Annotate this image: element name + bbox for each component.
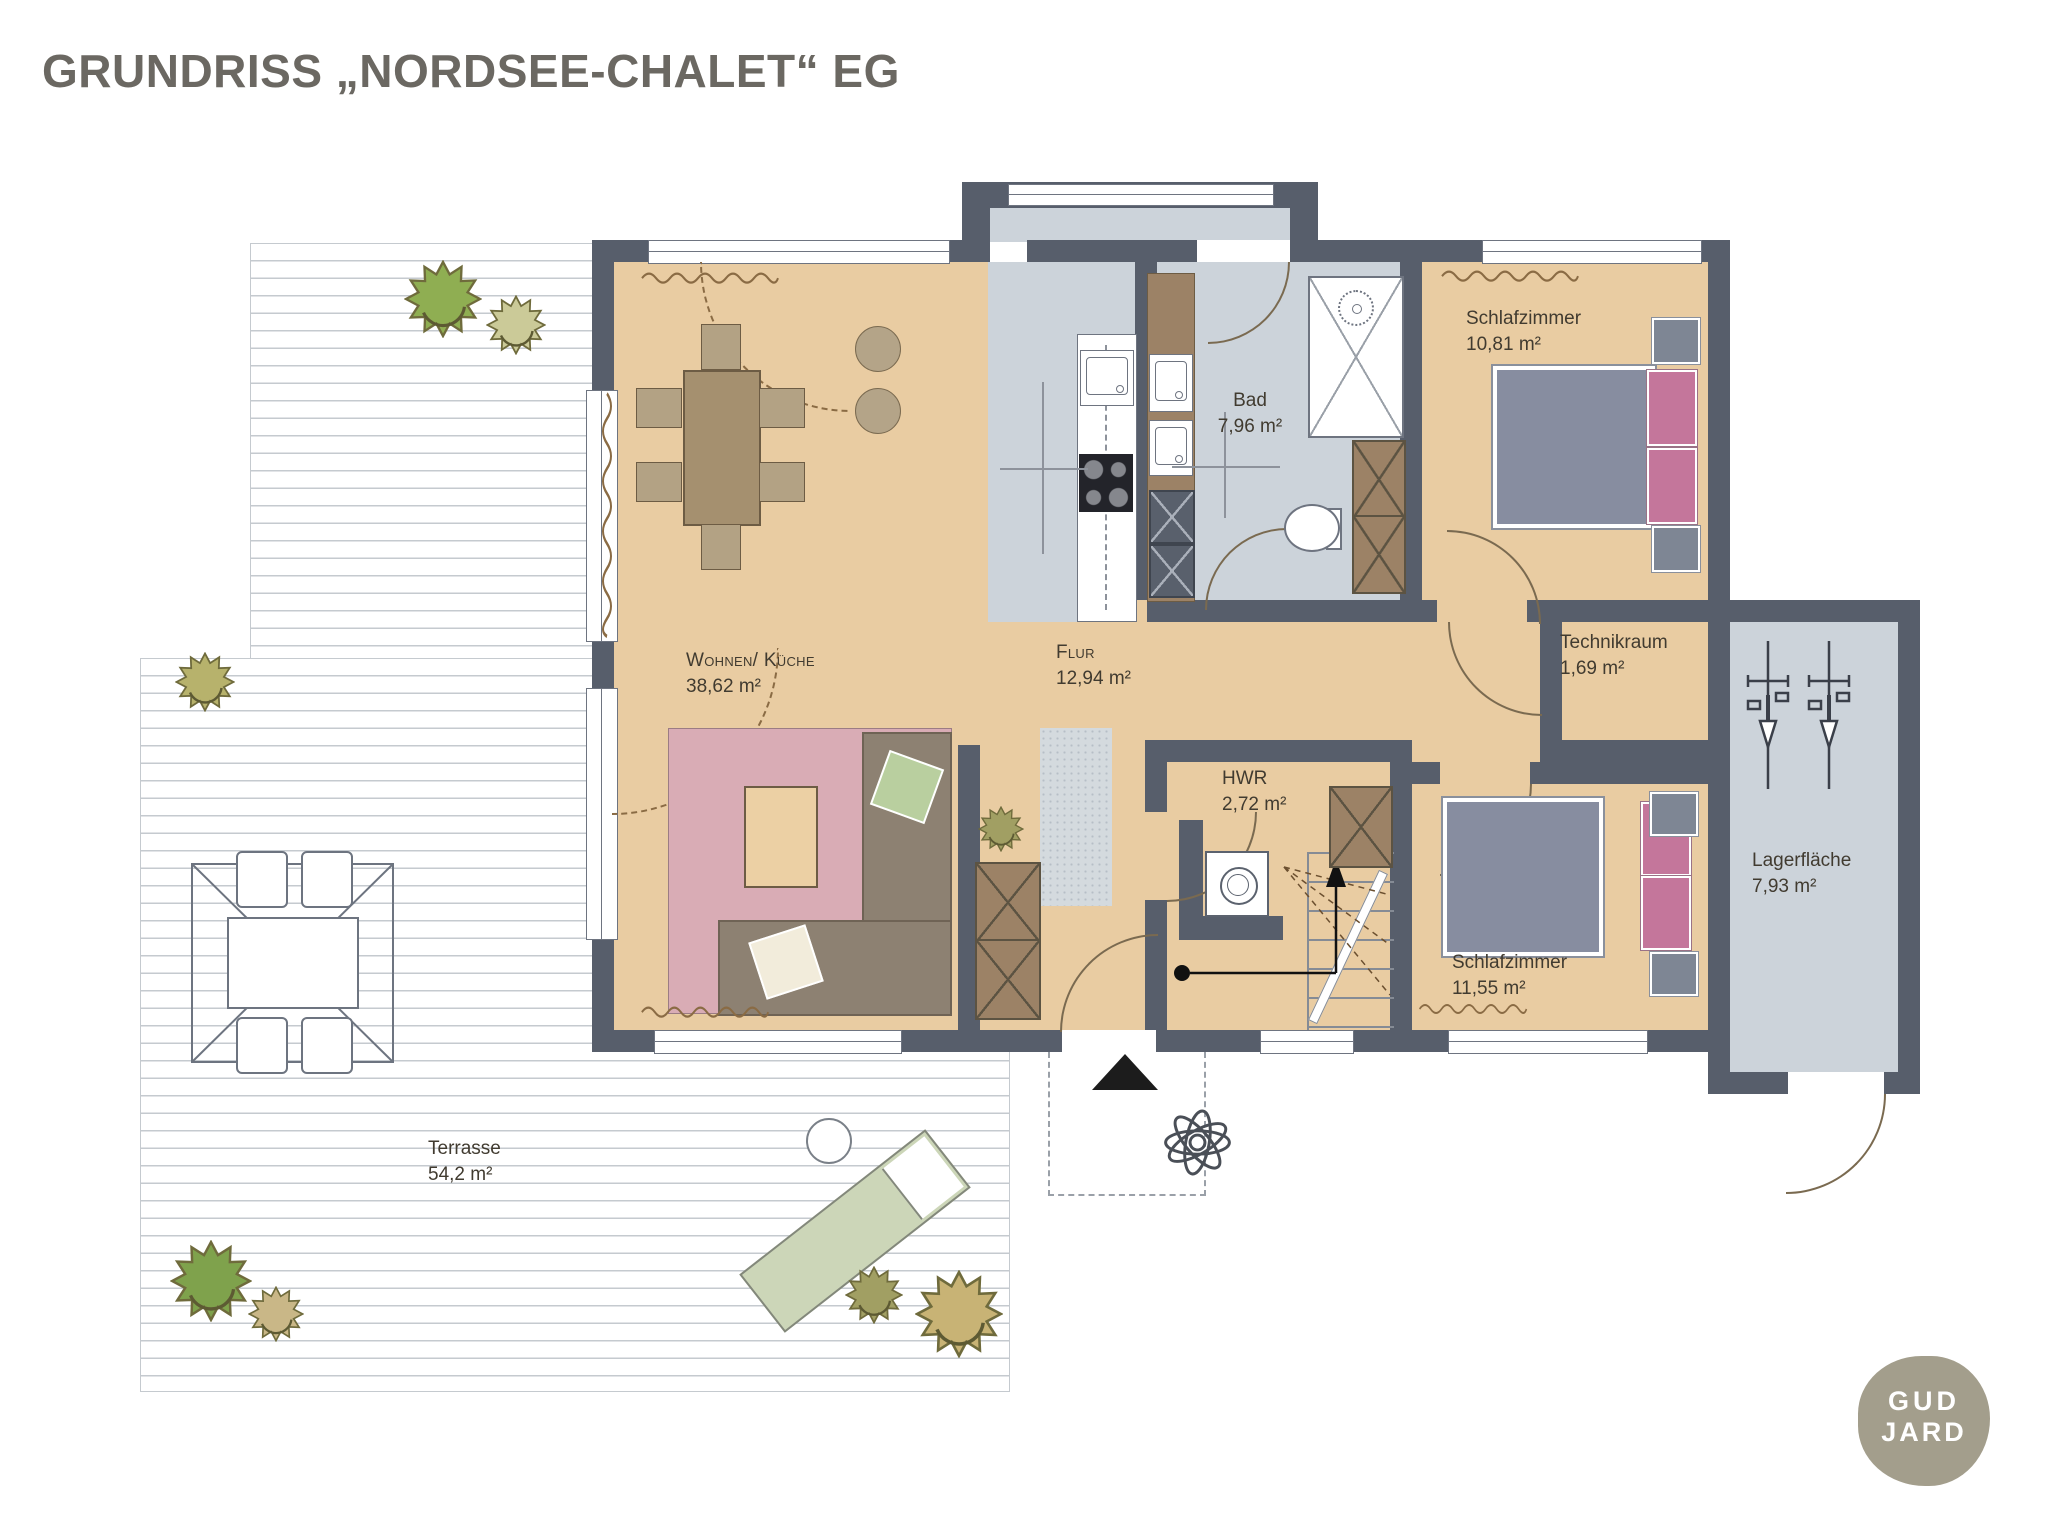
bath-cabinet <box>1352 440 1406 519</box>
pouf <box>855 326 901 372</box>
kitchen-sink <box>1080 350 1134 406</box>
wall <box>1708 240 1730 1094</box>
wall <box>1412 762 1440 784</box>
wall <box>592 1030 654 1052</box>
hall-mat <box>1040 728 1112 906</box>
bed <box>1493 366 1655 528</box>
door-arc-storage <box>1786 1094 1886 1194</box>
room-label-bedroom-bottom: Schlafzimmer 11,55 m² <box>1452 950 1567 1001</box>
chair <box>636 462 682 502</box>
wall-bay <box>1290 182 1318 262</box>
bay-window <box>1008 184 1274 206</box>
bay-floor <box>990 208 1290 242</box>
chair <box>636 388 682 428</box>
wall-storage <box>1884 1072 1920 1094</box>
wall-bay <box>962 182 990 262</box>
dimension-line <box>1172 466 1280 468</box>
tree-icon <box>915 1270 1003 1358</box>
sideboard <box>975 939 1041 1020</box>
bath-cabinet <box>1352 515 1406 594</box>
curtain-icon <box>1418 1000 1528 1016</box>
plant-sketch-icon <box>1155 1100 1240 1185</box>
pouf <box>855 388 901 434</box>
hall-cabinet <box>1329 786 1393 868</box>
curtain-icon <box>640 1002 770 1020</box>
wall <box>592 240 614 390</box>
wall <box>592 640 614 690</box>
toilet <box>1284 504 1340 552</box>
curtain-icon <box>1440 266 1580 284</box>
washbasin <box>1149 354 1193 412</box>
wall <box>1352 1030 1454 1052</box>
tree-icon <box>170 1240 252 1322</box>
wall <box>1527 600 1708 622</box>
room-label-bath: Bad 7,96 m² <box>1190 388 1310 439</box>
window-living-top <box>648 240 950 264</box>
cooktop <box>1079 454 1133 512</box>
dimension-line <box>1000 468 1088 470</box>
umbrella-table-group <box>180 850 405 1075</box>
nightstand <box>1652 318 1700 364</box>
storage-door-gap <box>1788 1072 1884 1094</box>
bath-door-gap <box>1197 240 1290 262</box>
tree-icon <box>248 1286 304 1342</box>
room-label-hall: Flur 12,94 m² <box>1056 640 1131 691</box>
dining-table <box>683 370 761 526</box>
wall-storage <box>1898 600 1920 1094</box>
curtain-icon <box>600 390 616 640</box>
nightstand <box>1650 952 1698 996</box>
stair-walkline <box>1168 855 1348 1035</box>
side-table <box>806 1118 852 1164</box>
floor-plan-page: GRUNDRISS „NORDSEE-CHALET“ EG <box>0 0 2048 1538</box>
bed-pillow <box>1641 876 1691 950</box>
room-label-terrace: Terrasse 54,2 m² <box>428 1136 501 1187</box>
nightstand <box>1650 792 1698 836</box>
room-label-bedroom-top: Schlafzimmer 10,81 m² <box>1466 306 1581 357</box>
bicycle-icon <box>1806 635 1852 795</box>
wall-technik <box>1540 740 1708 762</box>
wall-storage <box>1708 1072 1788 1094</box>
window-bedroom-top <box>1482 240 1702 264</box>
window-bedroom-bottom <box>1448 1030 1648 1054</box>
room-label-hwr: HWR 2,72 m² <box>1222 766 1286 817</box>
tree-icon <box>404 260 482 338</box>
appliance <box>1149 544 1195 598</box>
wall-storage <box>1730 600 1920 622</box>
wall <box>592 938 614 1032</box>
tree-icon <box>486 295 546 355</box>
wall <box>1147 600 1437 622</box>
wall <box>1318 240 1482 262</box>
window-living-bottom <box>654 1030 902 1054</box>
sideboard <box>975 862 1041 943</box>
wall <box>948 240 962 262</box>
chair <box>701 524 741 570</box>
wall <box>1027 240 1197 262</box>
room-label-living: Wohnen/ Küche 38,62 m² <box>686 648 815 699</box>
appliance <box>1149 490 1195 544</box>
shower-head-icon <box>1338 290 1374 326</box>
tree-icon <box>845 1266 903 1324</box>
curtain-icon <box>640 268 780 286</box>
chair <box>759 462 805 502</box>
wall-technik <box>1540 622 1562 740</box>
plant-icon <box>978 806 1024 852</box>
room-label-technik: Technikraum 1,69 m² <box>1560 630 1668 681</box>
chair <box>701 324 741 370</box>
gudjard-logo: GUD JARD <box>1858 1356 1990 1486</box>
tree-icon <box>175 652 235 712</box>
room-label-storage: Lagerfläche 7,93 m² <box>1752 848 1851 899</box>
bed-pillow <box>1647 448 1697 524</box>
wall-hwr <box>1145 762 1167 812</box>
bed <box>1443 798 1603 956</box>
wall <box>1530 762 1708 784</box>
wall-hwr <box>1145 740 1412 762</box>
dimension-line <box>1042 382 1044 554</box>
entrance-marker <box>1092 1054 1158 1090</box>
wall <box>900 1030 1062 1052</box>
bicycle-icon <box>1745 635 1791 795</box>
page-title: GRUNDRISS „NORDSEE-CHALET“ EG <box>42 44 900 98</box>
chair <box>759 388 805 428</box>
nightstand <box>1652 526 1700 572</box>
coffee-table <box>744 786 818 888</box>
bed-pillow <box>1647 370 1697 446</box>
